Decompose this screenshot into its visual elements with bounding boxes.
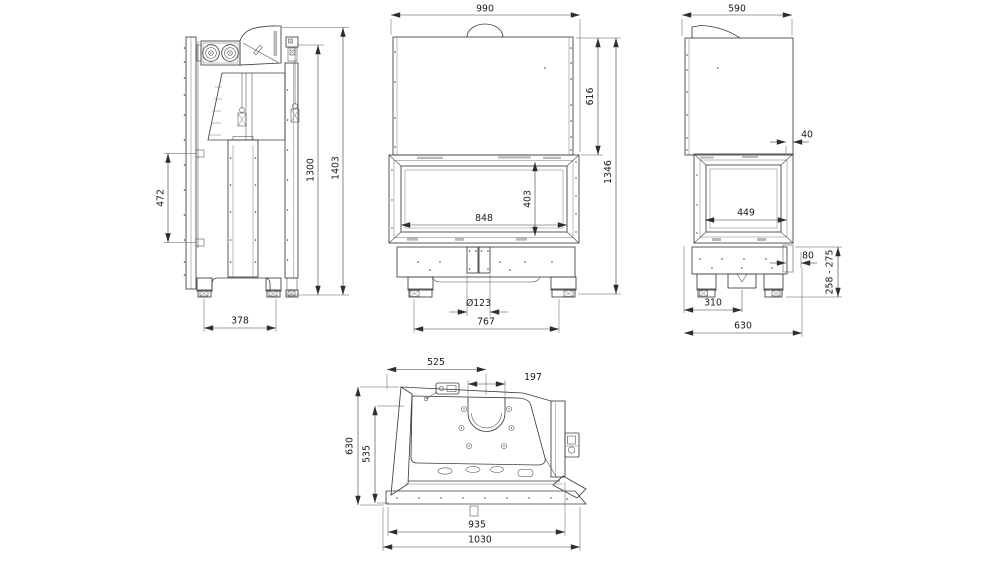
dim-top-630: 630 xyxy=(345,437,356,455)
side-center-column xyxy=(228,140,258,277)
dim-right-449: 449 xyxy=(737,208,755,219)
dim-side-1300: 1300 xyxy=(306,158,317,182)
dim-front-848: 848 xyxy=(475,213,493,224)
dim-front-767: 767 xyxy=(477,317,495,328)
dim-right-40: 40 xyxy=(801,130,813,141)
fan-outlet-icon xyxy=(222,45,239,62)
side-door-frame xyxy=(694,154,793,243)
foot xyxy=(197,278,212,297)
fan-outlet-box xyxy=(197,41,240,65)
damper-bracket xyxy=(286,37,298,61)
damper-handle xyxy=(424,383,459,401)
dim-front-616: 616 xyxy=(585,88,596,106)
front-door-frame xyxy=(389,155,579,243)
dim-side-378: 378 xyxy=(231,316,249,327)
center-leg xyxy=(728,274,756,312)
dim-right-80: 80 xyxy=(802,251,814,262)
dim-top-535: 535 xyxy=(362,445,373,463)
door-latch xyxy=(565,433,579,457)
dim-top-525: 525 xyxy=(427,357,445,368)
dim-side-1403: 1403 xyxy=(331,156,342,180)
right-base xyxy=(692,245,793,274)
dim-front-1346: 1346 xyxy=(603,160,614,184)
front-flange xyxy=(386,491,586,516)
clip xyxy=(196,239,204,246)
dim-front-403: 403 xyxy=(523,190,534,208)
drawing-svg: 472 1300 1403 378 xyxy=(0,0,1000,562)
technical-drawing-canvas: 472 1300 1403 378 xyxy=(0,0,1000,562)
clip xyxy=(196,150,204,157)
foot xyxy=(266,278,281,297)
hood xyxy=(240,26,281,65)
casing-screws xyxy=(686,54,719,151)
dim-right-310: 310 xyxy=(704,298,722,309)
right-casing xyxy=(685,38,793,155)
foot xyxy=(286,278,298,297)
corner-flange xyxy=(553,476,586,498)
right-panel xyxy=(551,401,565,477)
foot xyxy=(551,277,576,297)
dim-front-flue-diameter: Ø123 xyxy=(466,298,491,309)
dim-right-630: 630 xyxy=(734,321,752,332)
center-clip xyxy=(470,506,478,516)
front-view: 990 616 1346 848 403 Ø123 767 xyxy=(389,4,621,334)
floor-slots xyxy=(438,467,533,477)
dim-top-935: 935 xyxy=(468,520,486,531)
dim-front-990: 990 xyxy=(476,4,494,15)
foot xyxy=(697,274,716,297)
base-arch xyxy=(212,278,270,291)
counterweight-cable xyxy=(238,73,246,126)
foot xyxy=(764,274,783,297)
fan-outlet-icon xyxy=(203,45,220,62)
left-wall xyxy=(391,387,412,495)
casing-screws xyxy=(394,47,572,151)
front-casing xyxy=(393,37,573,155)
foot xyxy=(408,277,433,297)
flue-arc xyxy=(467,24,503,37)
top-dimensions: 525 197 630 535 935 1030 xyxy=(345,357,581,551)
top-damper-arc xyxy=(692,26,740,39)
panel-screws xyxy=(184,47,186,276)
flue-collar xyxy=(459,397,514,449)
bolt-hole xyxy=(459,406,514,448)
chamber-plate xyxy=(411,396,545,465)
dim-top-197: 197 xyxy=(524,372,542,383)
upper-chamber xyxy=(208,73,285,140)
dim-side-472: 472 xyxy=(156,189,167,207)
top-view: 525 197 630 535 935 1030 xyxy=(345,357,587,551)
back-edge xyxy=(401,387,551,401)
dim-top-1030: 1030 xyxy=(468,535,492,546)
front-dimensions: 990 616 1346 848 403 Ø123 767 xyxy=(391,4,621,334)
hood-label xyxy=(274,31,278,56)
side-glass xyxy=(706,165,781,232)
side-view: 472 1300 1403 378 xyxy=(156,26,350,332)
dim-right-258-275: 258 - 275 xyxy=(825,250,836,295)
side-front-column xyxy=(285,63,298,278)
right-view: 590 40 449 80 258 - 275 310 630 xyxy=(682,4,842,338)
dim-right-590: 590 xyxy=(728,4,746,15)
